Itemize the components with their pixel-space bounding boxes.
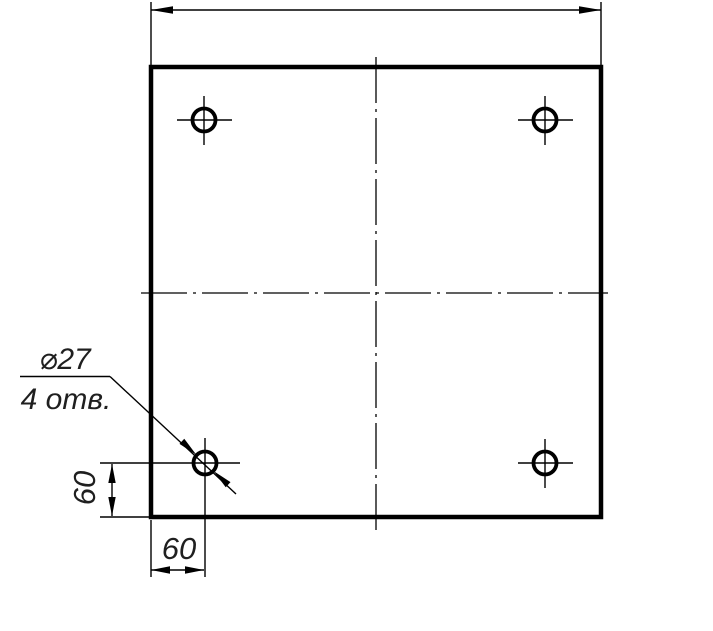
leader-note: ⌀27 4 отв.: [20, 343, 236, 494]
hole-top-right: [518, 96, 573, 145]
holes: [100, 96, 573, 577]
arrowhead-down: [108, 497, 115, 516]
drawing-canvas: ⌀27 4 отв. 60 60: [0, 0, 713, 631]
left-dimension-60: 60: [67, 464, 151, 517]
hole-top-left: [177, 96, 232, 145]
hole-diameter-label: ⌀27: [39, 343, 92, 376]
leader-line: [110, 377, 236, 495]
left-dimension-label: 60: [67, 471, 102, 505]
arrowhead-left: [151, 566, 170, 573]
hole-bottom-right: [518, 439, 573, 488]
arrowhead-right: [579, 6, 601, 14]
top-dimension: [151, 2, 601, 66]
bottom-dimension-60: 60: [151, 520, 204, 577]
bottom-dimension-label: 60: [162, 531, 196, 566]
arrowhead-left: [151, 6, 173, 14]
hole-count-label: 4 отв.: [21, 383, 112, 416]
arrowhead-up: [108, 464, 115, 483]
plate-drawing: ⌀27 4 отв. 60 60: [0, 0, 713, 631]
arrowhead-right: [185, 566, 204, 573]
